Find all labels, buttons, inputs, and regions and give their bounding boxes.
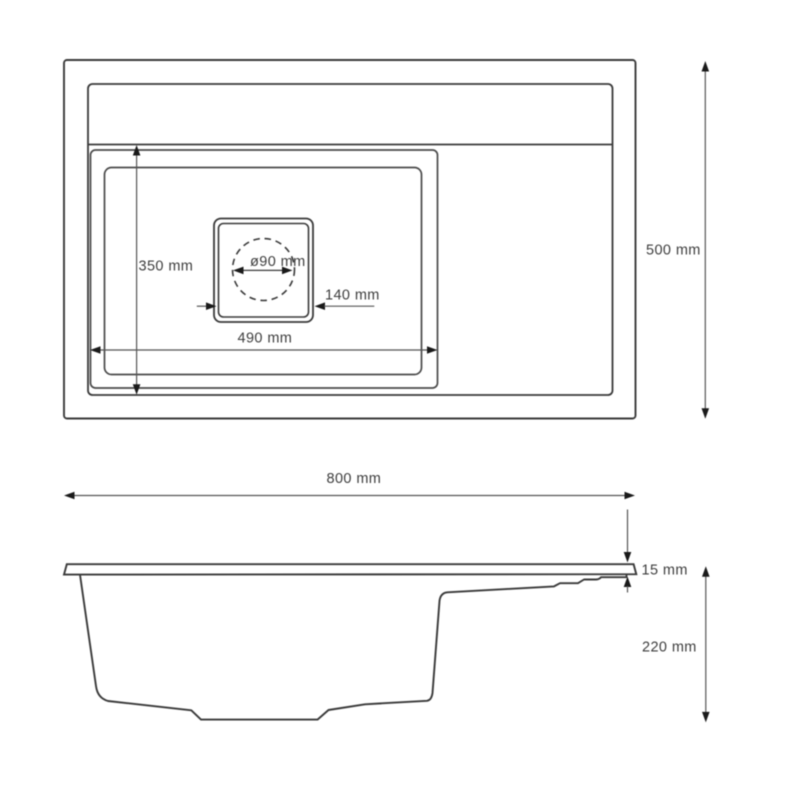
- svg-text:800 mm: 800 mm: [327, 471, 382, 487]
- svg-text:140 mm: 140 mm: [325, 288, 380, 304]
- svg-text:350 mm: 350 mm: [139, 259, 194, 275]
- svg-text:490 mm: 490 mm: [238, 331, 293, 347]
- svg-text:ø90 mm: ø90 mm: [250, 254, 306, 270]
- svg-text:220 mm: 220 mm: [642, 640, 697, 656]
- svg-text:500 mm: 500 mm: [646, 243, 701, 259]
- svg-text:15 mm: 15 mm: [642, 563, 688, 579]
